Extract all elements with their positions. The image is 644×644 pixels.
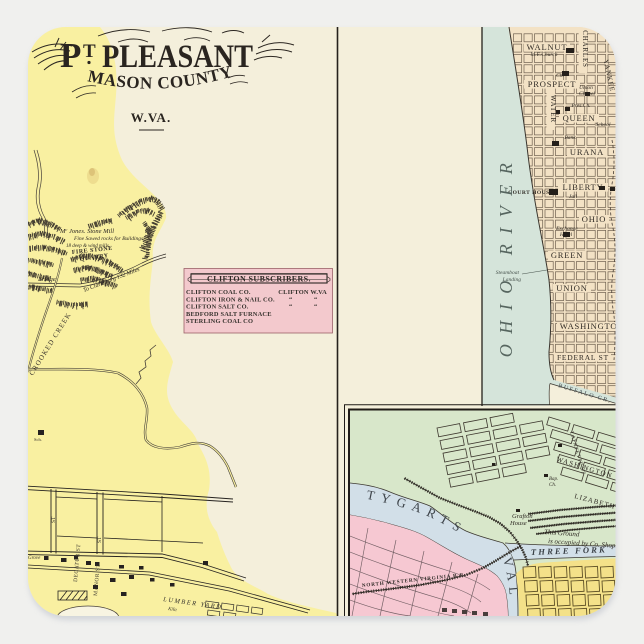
svg-text:Ch.: Ch. [549, 483, 556, 488]
svg-text:GREEN: GREEN [551, 250, 583, 260]
svg-text:Jail: Jail [569, 194, 578, 200]
svg-text:CLIFTON COAL CO.: CLIFTON COAL CO. [186, 289, 251, 296]
svg-text:CHARLES: CHARLES [581, 30, 589, 68]
svg-text:School: School [596, 122, 611, 128]
svg-text:WATER: WATER [549, 95, 557, 123]
svg-text:CLIFTON SUBSCRIBERS.: CLIFTON SUBSCRIBERS. [207, 275, 311, 284]
svg-text:House: House [509, 520, 527, 527]
svg-text:OHIO RIVER: OHIO RIVER [496, 153, 516, 357]
svg-text:Bap.: Bap. [549, 477, 558, 482]
svg-text:Pres.Ch.: Pres.Ch. [570, 103, 590, 109]
svg-text:Bank: Bank [564, 135, 576, 141]
svg-text:Sch.: Sch. [34, 437, 42, 442]
svg-text:PROSPECT: PROSPECT [528, 79, 576, 89]
svg-text:“: “ [289, 304, 292, 311]
svg-text:Grove: Grove [28, 556, 41, 561]
svg-text:ST: ST [51, 516, 57, 523]
svg-text:Mc Jones. Stone Mill: Mc Jones. Stone Mill [59, 227, 114, 235]
svg-text:“: “ [314, 296, 317, 303]
svg-text:ST: ST [97, 536, 103, 543]
svg-text:CLIFTON W.VA: CLIFTON W.VA [278, 289, 327, 296]
svg-text:W.VA.: W.VA. [131, 110, 171, 125]
svg-text:M.E.Church: M.E.Church [530, 52, 558, 58]
svg-text:“: “ [314, 304, 317, 311]
svg-text:T: T [83, 41, 96, 62]
svg-text:CLIFTON IRON & NAIL CO.: CLIFTON IRON & NAIL CO. [186, 296, 275, 303]
svg-text:P: P [60, 36, 81, 75]
svg-text:“: “ [289, 296, 292, 303]
svg-text:URANA: URANA [570, 147, 604, 157]
svg-text:BEDFORD SALT FURNACE: BEDFORD SALT FURNACE [186, 311, 272, 318]
svg-text:CLIFTON SALT CO.: CLIFTON SALT CO. [186, 304, 249, 311]
svg-text:Fine Sawed rocks for Buildings: Fine Sawed rocks for Buildings. [73, 235, 145, 242]
svg-text:WASHINGTON: WASHINGTON [560, 321, 625, 331]
svg-text:OHIO: OHIO [582, 214, 606, 224]
svg-text:FEDERAL ST: FEDERAL ST [557, 353, 609, 362]
svg-text:UNION: UNION [556, 283, 587, 293]
svg-text:QUEEN: QUEEN [563, 113, 596, 123]
svg-text:STERLING COAL CO: STERLING COAL CO [186, 318, 253, 325]
svg-text:Grafton: Grafton [512, 513, 533, 520]
svg-text:WALNUT: WALNUT [527, 42, 568, 52]
svg-text:Bridge: Bridge [38, 276, 56, 283]
svg-text:LIBERTY: LIBERTY [563, 182, 604, 192]
